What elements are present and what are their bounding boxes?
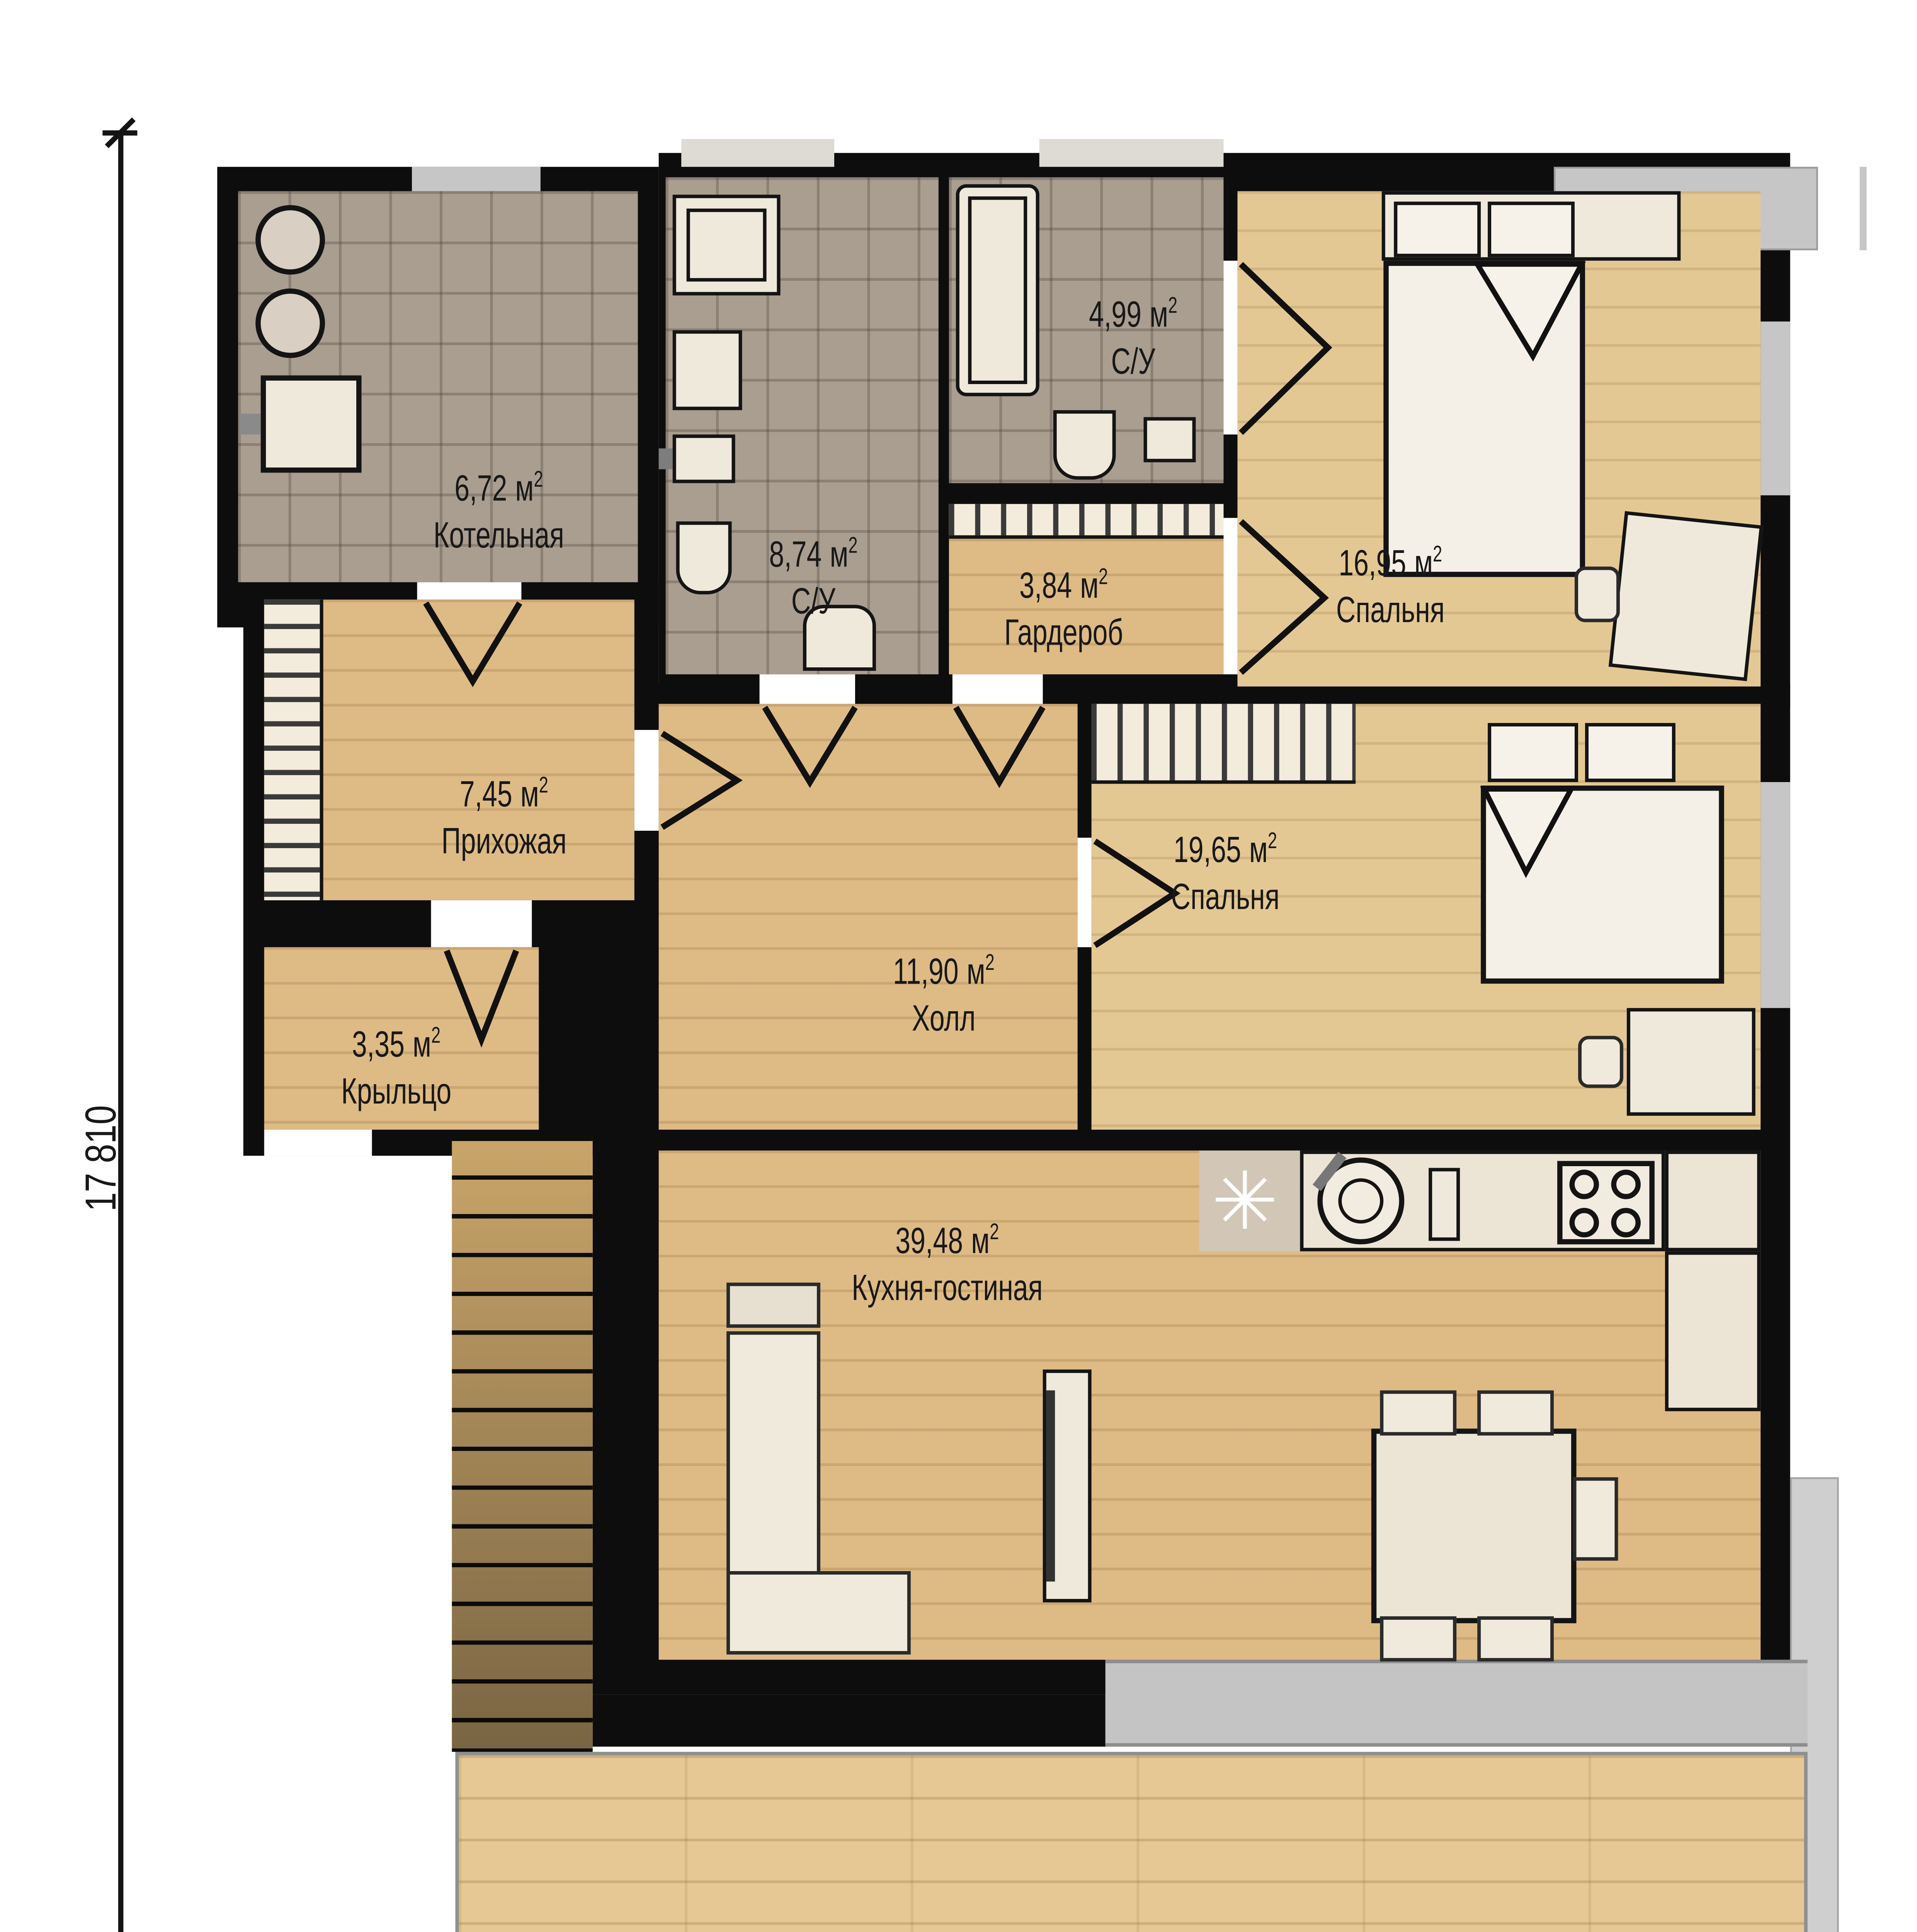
room-label-kitchen-living: 39,48м2 Кухня-гостиная [852,1208,1043,1312]
room-name: Кухня-гостиная [852,1265,1043,1312]
room-label-prihozhaya: 7,45м2 Прихожая [441,761,566,866]
room-area: 3,84м2 [1004,553,1123,610]
room-name: Холл [893,996,995,1043]
room-label-hall: 11,90м2 Холл [893,939,995,1043]
room-area: 19,65м2 [1171,817,1280,874]
floor-plan-canvas: 17 810 13 800 [0,0,1917,1932]
room-area: 16,95м2 [1336,530,1445,587]
room-label-su-top: 8,74м2 С/У [769,521,857,626]
room-label-kryltso: 3,35м2 Крыльцо [341,1012,451,1116]
room-name: Котельная [434,513,564,560]
room-label-garderob: 3,84м2 Гардероб [1004,553,1123,657]
room-name: Гардероб [1004,610,1123,657]
room-name: Спальня [1336,587,1445,634]
room-area: 7,45м2 [441,761,566,818]
room-label-bedroom-top: 16,95м2 Спальня [1336,530,1445,634]
room-area: 4,99м2 [1089,282,1177,339]
room-area: 3,35м2 [341,1012,451,1069]
room-name: С/У [769,579,857,626]
room-area: 8,74м2 [769,521,857,578]
room-area: 6,72м2 [434,455,564,512]
room-label-bedroom-mid: 19,65м2 Спальня [1171,817,1280,921]
room-area: 11,90м2 [893,939,995,996]
room-name: Спальня [1171,874,1280,921]
room-area: 39,48м2 [852,1208,1043,1265]
room-name: Крыльцо [341,1069,451,1116]
room-name: С/У [1089,339,1177,386]
room-name: Прихожая [441,818,566,865]
room-label-su-small: 4,99м2 С/У [1089,282,1177,386]
room-label-kotelnaya: 6,72м2 Котельная [434,455,564,560]
